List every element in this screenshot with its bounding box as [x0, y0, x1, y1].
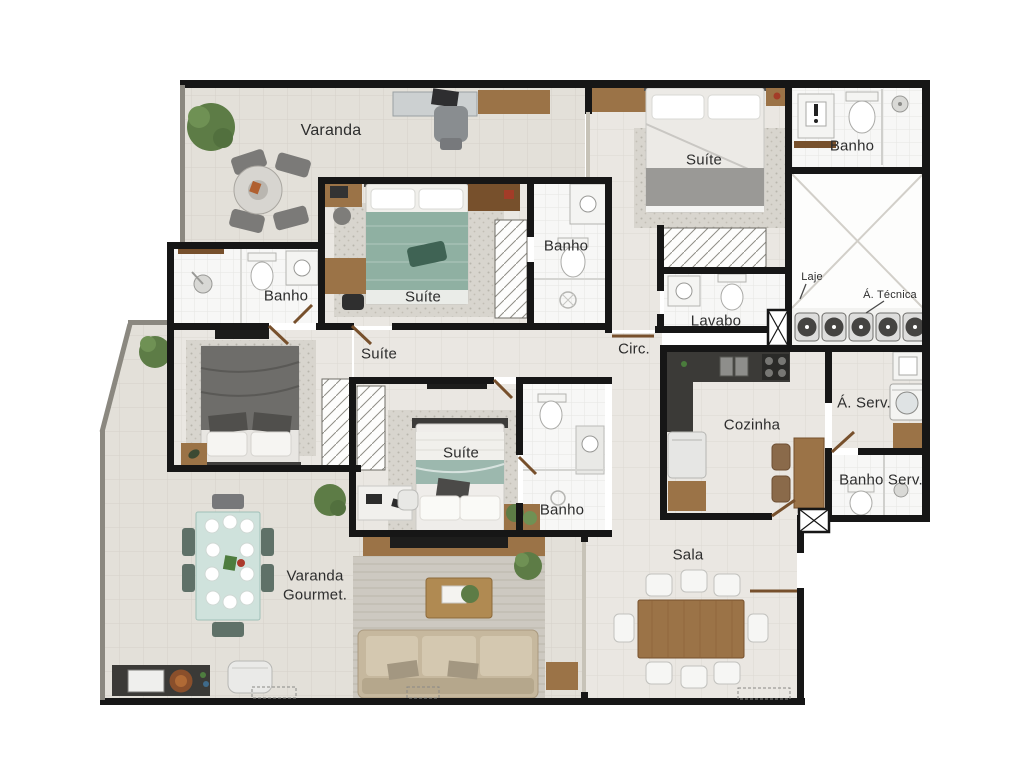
room-label-suite-top: Suíte — [405, 289, 441, 306]
room-label-lavabo: Lavabo — [691, 313, 741, 330]
floor-plan-page: Varanda Banho Suíte Banho Suíte Banho La… — [0, 0, 1024, 777]
room-label-circ: Circ. — [618, 341, 650, 358]
room-label-cozinha: Cozinha — [724, 417, 780, 434]
tree-plant — [187, 103, 235, 151]
sofa — [358, 630, 538, 698]
service-area-fixtures — [890, 352, 924, 448]
side-table — [546, 662, 578, 690]
room-label-suite-left: Suíte — [361, 346, 397, 363]
kitchen-cabinet — [668, 481, 706, 511]
room-label-banho-right: Banho — [830, 138, 874, 155]
room-label-banho-servico: Banho Serv. — [839, 472, 923, 489]
room-label-suite-right: Suíte — [686, 152, 722, 169]
coffee-table — [426, 578, 492, 618]
room-label-banho-middle: Banho — [540, 502, 584, 519]
room-label-sala: Sala — [673, 547, 704, 564]
kitchen-fridge — [668, 432, 706, 478]
room-label-banho-left: Banho — [264, 288, 308, 305]
room-label-banho-top: Banho — [544, 238, 588, 255]
tv-cabinet — [363, 534, 545, 556]
gourmet-table-set — [182, 494, 274, 637]
room-label-laje: Laje — [801, 271, 823, 283]
grill-counter — [112, 665, 210, 696]
cooler-stool — [228, 661, 272, 693]
room-label-area-servico: Á. Serv. — [837, 395, 891, 412]
floor-plan-drawing — [0, 0, 1024, 777]
floor-corridor — [612, 333, 662, 515]
room-label-suite-middle: Suíte — [443, 445, 479, 462]
room-label-varanda-gourmet: Varanda Gourmet. — [269, 567, 361, 605]
room-label-area-tecnica: Á. Técnica — [863, 289, 917, 301]
varanda-sideboard — [478, 90, 550, 114]
room-label-varanda: Varanda — [301, 122, 362, 140]
ac-units — [795, 313, 927, 341]
